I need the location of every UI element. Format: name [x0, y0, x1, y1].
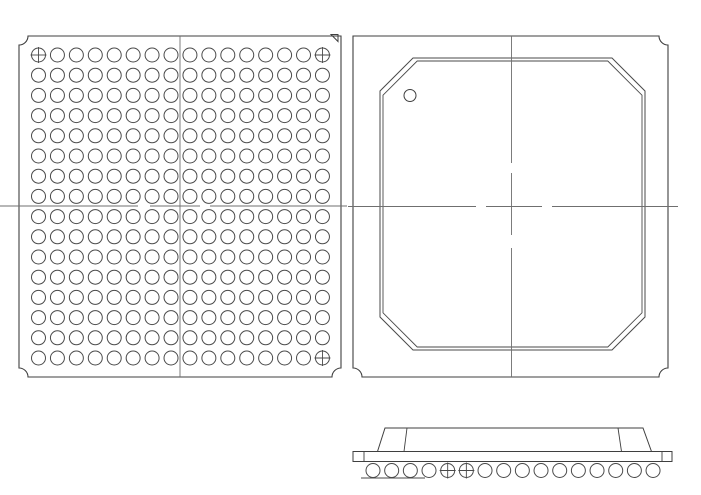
solder-ball	[221, 109, 235, 123]
solder-ball	[221, 250, 235, 264]
solder-ball	[221, 290, 235, 304]
solder-ball	[315, 311, 329, 325]
solder-ball	[240, 149, 254, 163]
solder-ball	[164, 290, 178, 304]
side-view-lid-chamfer-line	[404, 428, 407, 452]
solder-ball	[297, 270, 311, 284]
solder-ball	[202, 270, 216, 284]
solder-ball	[50, 68, 64, 82]
solder-ball	[32, 109, 46, 123]
solder-ball	[32, 351, 46, 365]
datum-crosshair-icon	[314, 47, 330, 63]
solder-ball	[366, 464, 380, 478]
solder-ball	[50, 351, 64, 365]
solder-ball	[297, 250, 311, 264]
solder-ball	[126, 189, 140, 203]
solder-ball	[164, 68, 178, 82]
solder-ball	[590, 464, 604, 478]
solder-ball	[88, 149, 102, 163]
bottom-view	[0, 35, 347, 378]
solder-ball	[221, 149, 235, 163]
solder-ball	[32, 290, 46, 304]
solder-ball	[88, 109, 102, 123]
solder-ball	[497, 464, 511, 478]
solder-ball	[32, 129, 46, 143]
solder-ball	[164, 250, 178, 264]
solder-ball	[240, 331, 254, 345]
solder-ball	[88, 351, 102, 365]
solder-ball	[107, 149, 121, 163]
solder-ball	[278, 290, 292, 304]
solder-ball	[145, 351, 159, 365]
solder-ball	[107, 230, 121, 244]
solder-ball	[69, 210, 83, 224]
solder-ball	[221, 48, 235, 62]
solder-ball	[259, 331, 273, 345]
solder-ball	[202, 351, 216, 365]
solder-ball	[315, 169, 329, 183]
solder-ball	[145, 250, 159, 264]
solder-ball	[297, 290, 311, 304]
solder-ball	[69, 290, 83, 304]
solder-ball	[32, 311, 46, 325]
solder-ball	[50, 149, 64, 163]
solder-ball	[183, 270, 197, 284]
solder-ball	[69, 351, 83, 365]
solder-ball	[221, 311, 235, 325]
solder-ball	[183, 351, 197, 365]
solder-ball	[88, 129, 102, 143]
solder-ball	[240, 311, 254, 325]
solder-ball	[297, 149, 311, 163]
solder-ball	[126, 230, 140, 244]
solder-ball	[50, 250, 64, 264]
solder-ball	[278, 149, 292, 163]
solder-ball	[50, 290, 64, 304]
solder-ball	[145, 331, 159, 345]
solder-ball	[32, 169, 46, 183]
solder-ball	[145, 48, 159, 62]
solder-ball	[183, 88, 197, 102]
solder-ball-grid	[31, 47, 331, 366]
solder-ball	[297, 210, 311, 224]
solder-ball	[183, 48, 197, 62]
solder-ball	[126, 68, 140, 82]
solder-ball	[69, 88, 83, 102]
solder-ball	[145, 68, 159, 82]
solder-ball	[297, 129, 311, 143]
solder-ball	[278, 88, 292, 102]
solder-ball	[278, 331, 292, 345]
solder-ball	[145, 88, 159, 102]
solder-ball	[50, 189, 64, 203]
solder-ball	[164, 270, 178, 284]
solder-ball	[221, 210, 235, 224]
solder-ball	[315, 88, 329, 102]
solder-ball	[183, 311, 197, 325]
solder-ball	[315, 149, 329, 163]
solder-ball	[259, 250, 273, 264]
solder-ball	[50, 48, 64, 62]
datum-crosshair-icon	[314, 350, 330, 366]
solder-ball	[315, 250, 329, 264]
solder-ball	[183, 129, 197, 143]
solder-ball	[145, 230, 159, 244]
solder-ball	[145, 129, 159, 143]
solder-ball	[240, 48, 254, 62]
solder-ball	[50, 109, 64, 123]
solder-ball	[202, 250, 216, 264]
solder-ball	[126, 270, 140, 284]
solder-ball	[88, 290, 102, 304]
solder-ball	[202, 109, 216, 123]
solder-ball	[240, 109, 254, 123]
solder-ball	[240, 270, 254, 284]
solder-ball	[69, 331, 83, 345]
solder-ball	[202, 129, 216, 143]
top-view	[348, 36, 678, 377]
solder-ball	[183, 331, 197, 345]
solder-ball	[88, 68, 102, 82]
solder-ball	[183, 230, 197, 244]
solder-ball	[646, 464, 660, 478]
solder-ball	[259, 189, 273, 203]
solder-ball	[88, 88, 102, 102]
solder-ball	[221, 230, 235, 244]
solder-ball	[315, 270, 329, 284]
side-view-ball-row	[366, 463, 660, 479]
solder-ball	[221, 68, 235, 82]
solder-ball	[126, 169, 140, 183]
solder-ball	[297, 169, 311, 183]
solder-ball	[145, 169, 159, 183]
solder-ball	[278, 230, 292, 244]
solder-ball	[50, 129, 64, 143]
solder-ball	[202, 311, 216, 325]
solder-ball	[183, 250, 197, 264]
solder-ball	[297, 351, 311, 365]
solder-ball	[534, 464, 548, 478]
solder-ball	[202, 290, 216, 304]
solder-ball	[315, 331, 329, 345]
solder-ball	[69, 250, 83, 264]
solder-ball	[107, 68, 121, 82]
solder-ball	[571, 464, 585, 478]
solder-ball	[221, 129, 235, 143]
solder-ball	[259, 351, 273, 365]
solder-ball	[240, 230, 254, 244]
solder-ball	[69, 230, 83, 244]
pin-1-indicator-icon	[404, 90, 416, 102]
solder-ball	[422, 464, 436, 478]
solder-ball	[240, 68, 254, 82]
solder-ball	[553, 464, 567, 478]
solder-ball	[69, 129, 83, 143]
solder-ball	[107, 290, 121, 304]
solder-ball	[50, 270, 64, 284]
solder-ball	[50, 210, 64, 224]
solder-ball	[202, 88, 216, 102]
solder-ball	[183, 210, 197, 224]
solder-ball	[88, 331, 102, 345]
solder-ball	[126, 311, 140, 325]
solder-ball	[259, 290, 273, 304]
solder-ball	[69, 68, 83, 82]
solder-ball	[221, 351, 235, 365]
solder-ball	[202, 230, 216, 244]
solder-ball	[32, 88, 46, 102]
solder-ball	[126, 210, 140, 224]
solder-ball	[107, 88, 121, 102]
solder-ball	[240, 169, 254, 183]
solder-ball	[164, 189, 178, 203]
solder-ball	[278, 189, 292, 203]
solder-ball	[107, 331, 121, 345]
solder-ball	[183, 68, 197, 82]
solder-ball	[183, 290, 197, 304]
solder-ball	[183, 109, 197, 123]
solder-ball	[278, 210, 292, 224]
solder-ball	[69, 169, 83, 183]
solder-ball	[145, 109, 159, 123]
solder-ball	[50, 169, 64, 183]
solder-ball	[202, 331, 216, 345]
solder-ball	[126, 250, 140, 264]
solder-ball	[221, 270, 235, 284]
solder-ball	[164, 230, 178, 244]
solder-ball	[145, 189, 159, 203]
solder-ball	[164, 169, 178, 183]
side-view-lid-chamfer-line	[618, 428, 622, 452]
solder-ball	[107, 169, 121, 183]
solder-ball	[297, 311, 311, 325]
side-view-substrate	[353, 452, 672, 462]
solder-ball	[88, 210, 102, 224]
solder-ball	[315, 68, 329, 82]
solder-ball	[164, 351, 178, 365]
solder-ball	[50, 311, 64, 325]
solder-ball	[32, 210, 46, 224]
solder-ball	[278, 68, 292, 82]
solder-ball	[50, 88, 64, 102]
solder-ball	[69, 189, 83, 203]
solder-ball	[278, 109, 292, 123]
solder-ball	[478, 464, 492, 478]
solder-ball	[126, 88, 140, 102]
solder-ball	[69, 311, 83, 325]
solder-ball	[385, 464, 399, 478]
solder-ball	[32, 149, 46, 163]
side-view	[353, 428, 672, 479]
solder-ball	[126, 109, 140, 123]
solder-ball	[164, 129, 178, 143]
solder-ball	[183, 149, 197, 163]
solder-ball	[88, 311, 102, 325]
solder-ball	[202, 189, 216, 203]
solder-ball	[183, 169, 197, 183]
solder-ball	[221, 169, 235, 183]
solder-ball	[126, 331, 140, 345]
solder-ball	[145, 210, 159, 224]
solder-ball	[32, 270, 46, 284]
solder-ball	[88, 250, 102, 264]
solder-ball	[259, 88, 273, 102]
solder-ball	[315, 210, 329, 224]
solder-ball	[259, 149, 273, 163]
solder-ball	[88, 169, 102, 183]
solder-ball	[88, 230, 102, 244]
solder-ball	[297, 88, 311, 102]
solder-ball	[278, 169, 292, 183]
solder-ball	[259, 270, 273, 284]
solder-ball	[278, 48, 292, 62]
solder-ball	[278, 250, 292, 264]
solder-ball	[403, 464, 417, 478]
solder-ball	[278, 129, 292, 143]
solder-ball	[69, 270, 83, 284]
solder-ball	[202, 68, 216, 82]
solder-ball	[164, 109, 178, 123]
solder-ball	[145, 270, 159, 284]
solder-ball	[259, 311, 273, 325]
bga-package-drawing	[0, 0, 701, 495]
solder-ball	[315, 189, 329, 203]
solder-ball	[627, 464, 641, 478]
datum-crosshair-icon	[458, 463, 474, 479]
solder-ball	[32, 68, 46, 82]
solder-ball	[126, 129, 140, 143]
solder-ball	[202, 48, 216, 62]
solder-ball	[259, 109, 273, 123]
solder-ball	[240, 88, 254, 102]
solder-ball	[145, 311, 159, 325]
solder-ball	[69, 48, 83, 62]
datum-crosshair-icon	[440, 463, 456, 479]
solder-ball	[32, 189, 46, 203]
solder-ball	[126, 48, 140, 62]
solder-ball	[126, 290, 140, 304]
solder-ball	[164, 149, 178, 163]
solder-ball	[278, 351, 292, 365]
solder-ball	[259, 48, 273, 62]
solder-ball	[315, 109, 329, 123]
solder-ball	[107, 311, 121, 325]
lid-outline-inner	[383, 61, 642, 347]
solder-ball	[259, 68, 273, 82]
solder-ball	[164, 311, 178, 325]
solder-ball	[315, 129, 329, 143]
solder-ball	[107, 270, 121, 284]
solder-ball	[126, 149, 140, 163]
solder-ball	[107, 189, 121, 203]
solder-ball	[69, 109, 83, 123]
solder-ball	[240, 189, 254, 203]
solder-ball	[107, 351, 121, 365]
solder-ball	[164, 331, 178, 345]
solder-ball	[315, 290, 329, 304]
solder-ball	[278, 270, 292, 284]
solder-ball	[107, 129, 121, 143]
solder-ball	[88, 270, 102, 284]
solder-ball	[278, 311, 292, 325]
solder-ball	[202, 210, 216, 224]
solder-ball	[164, 210, 178, 224]
solder-ball	[240, 210, 254, 224]
solder-ball	[259, 129, 273, 143]
solder-ball	[315, 230, 329, 244]
datum-crosshair-icon	[31, 47, 47, 63]
solder-ball	[50, 331, 64, 345]
solder-ball	[297, 68, 311, 82]
solder-ball	[259, 210, 273, 224]
solder-ball	[240, 129, 254, 143]
side-view-lid-profile	[378, 428, 652, 452]
solder-ball	[240, 290, 254, 304]
solder-ball	[107, 250, 121, 264]
solder-ball	[88, 48, 102, 62]
solder-ball	[202, 149, 216, 163]
solder-ball	[221, 88, 235, 102]
solder-ball	[259, 169, 273, 183]
solder-ball	[221, 331, 235, 345]
solder-ball	[221, 189, 235, 203]
solder-ball	[107, 109, 121, 123]
solder-ball	[145, 149, 159, 163]
solder-ball	[297, 48, 311, 62]
solder-ball	[609, 464, 623, 478]
solder-ball	[259, 230, 273, 244]
solder-ball	[297, 189, 311, 203]
solder-ball	[164, 88, 178, 102]
solder-ball	[126, 351, 140, 365]
solder-ball	[202, 169, 216, 183]
solder-ball	[297, 109, 311, 123]
solder-ball	[240, 250, 254, 264]
solder-ball	[107, 210, 121, 224]
solder-ball	[88, 189, 102, 203]
solder-ball	[297, 230, 311, 244]
solder-ball	[145, 290, 159, 304]
solder-ball	[69, 149, 83, 163]
solder-ball	[515, 464, 529, 478]
solder-ball	[164, 48, 178, 62]
solder-ball	[297, 331, 311, 345]
solder-ball	[183, 189, 197, 203]
lid-outline-outer	[380, 58, 645, 350]
solder-ball	[240, 351, 254, 365]
solder-ball	[32, 230, 46, 244]
solder-ball	[32, 331, 46, 345]
solder-ball	[32, 250, 46, 264]
solder-ball	[107, 48, 121, 62]
bga-package-drawing-canvas	[0, 0, 701, 495]
solder-ball	[50, 230, 64, 244]
